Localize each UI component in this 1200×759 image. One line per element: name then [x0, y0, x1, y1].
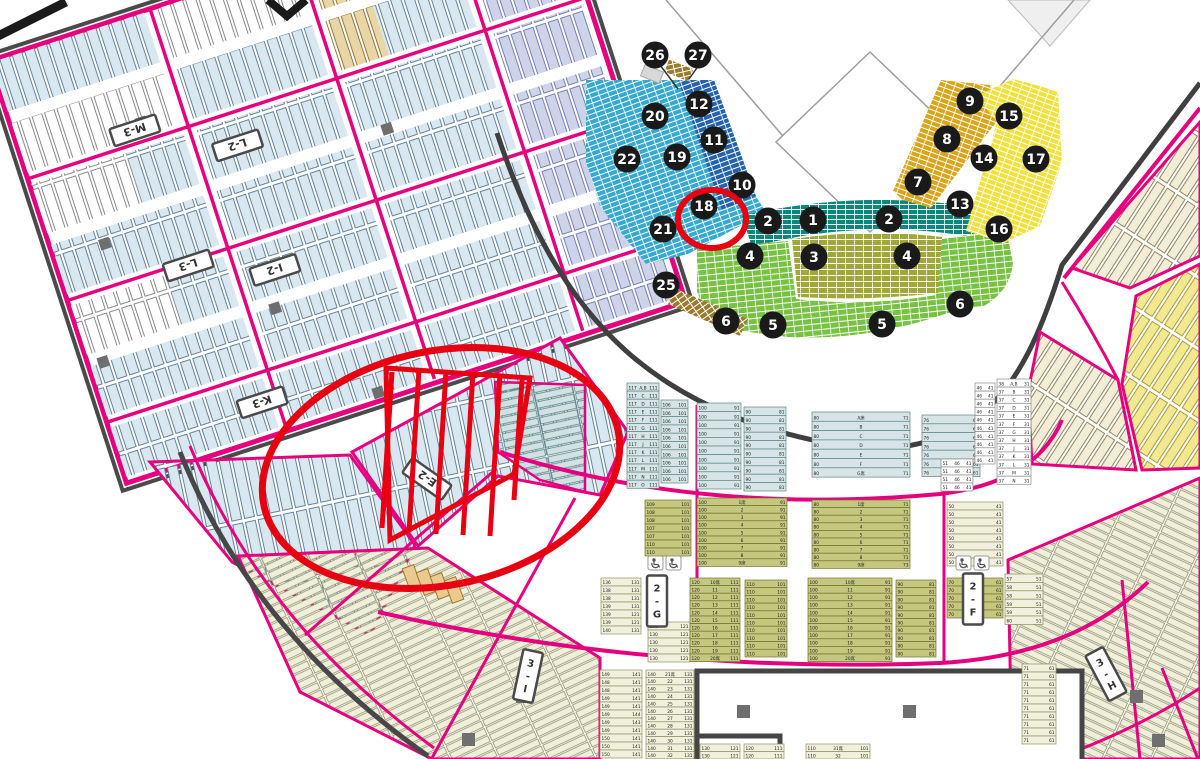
seat-row-number: 58: [1007, 585, 1013, 591]
seat-row-number: 91: [885, 580, 891, 586]
seat-row-number: 51: [943, 477, 949, 483]
stairs-icon: [1152, 734, 1165, 747]
seat-row-number: 100: [810, 618, 818, 624]
seat-row-number: 100: [699, 500, 707, 506]
seat-row-number: G: [1012, 430, 1015, 436]
seat-row-number: 110: [747, 582, 755, 588]
seat-row-number: 131: [684, 731, 692, 737]
seat-row-number: 2: [741, 508, 744, 514]
seat-row-number: 91: [780, 538, 786, 544]
accessibility-icon: [974, 556, 989, 570]
seat-row-number: 90: [898, 628, 904, 634]
seat-row-number: 71: [903, 548, 909, 554]
seat-row-number: 46: [977, 402, 983, 408]
seat-row-number: 101: [678, 419, 686, 425]
minimap-section-circle: 13: [947, 191, 974, 218]
seat-row-number: 100: [810, 656, 818, 662]
seat-row-number: 71: [903, 415, 909, 421]
seat-row-number: 80: [814, 532, 820, 538]
seat-row-number: 131: [631, 596, 639, 602]
minimap-section-number: 26: [645, 48, 664, 64]
seat-row-number: 51: [943, 469, 949, 475]
minimap-section-number: 4: [745, 249, 755, 265]
right-wing-stand-upper: [1072, 122, 1200, 288]
seat-row-number: 37: [999, 479, 1005, 485]
seat-row-number: 50: [949, 552, 955, 558]
seat-row-number: 117: [629, 483, 637, 489]
seat-row-number: 121: [730, 746, 738, 752]
seat-row-number: 111: [730, 656, 738, 662]
seat-row-number: 2: [860, 510, 863, 516]
seat-row-number: 107: [647, 534, 655, 540]
seat-block-group: 117A,B111117C111117D111117E111117F111117…: [627, 383, 659, 489]
seat-row-number: 140: [648, 694, 656, 700]
seat-row-number: 110: [747, 590, 755, 596]
minimap-section-number: 5: [877, 317, 887, 333]
seat-row-number: 41: [996, 544, 1002, 550]
minimap-section-number: 5: [768, 318, 778, 334]
seat-row-number: 131: [684, 687, 692, 693]
seat-row-number: 37: [999, 470, 1005, 476]
seat-row-number: 106: [663, 461, 671, 467]
seat-row-number: 71: [903, 540, 909, 546]
seat-row-number: 81: [929, 597, 935, 603]
seat-row-number: 101: [777, 644, 785, 650]
seat-row-number: 13: [847, 603, 853, 609]
seat-row-number: 71: [903, 452, 909, 458]
seat-row-number: 71: [1024, 730, 1030, 736]
seat-row-number: 80: [814, 502, 820, 508]
seat-row-number: 61: [1049, 706, 1055, 712]
seat-row-number: 18: [712, 641, 718, 647]
seat-row-number: 41: [988, 410, 994, 416]
minimap-section-circle: 20: [642, 103, 669, 130]
minimap-section-circle: 5: [869, 311, 896, 338]
seat-row-number: 100: [699, 561, 707, 567]
seat-row-number: E: [1013, 414, 1016, 420]
seat-row-number: 101: [681, 526, 689, 532]
seat-row-number: 81: [929, 636, 935, 642]
minimap-section-circle: 15: [996, 103, 1023, 130]
minimap-section-circle: 16: [986, 216, 1013, 243]
seat-row-number: 120: [746, 753, 754, 759]
minimap-section-number: 12: [689, 97, 708, 113]
seat-row-number: 71: [903, 471, 909, 477]
seat-block-group: 120111120111: [744, 744, 784, 759]
minimap-section-circle: 4: [737, 243, 764, 270]
seat-row-number: 41: [966, 461, 972, 467]
seat-block-group: 4641464146414641464146414641464146414641: [975, 383, 995, 464]
stairs-icon: [1130, 690, 1143, 703]
seat-row-number: 7: [741, 546, 744, 552]
minimap-section-number: 13: [950, 197, 969, 213]
seat-row-number: 140: [648, 687, 656, 693]
seat-row-number: 31: [1024, 430, 1030, 436]
minimap-section-circle: 17: [1023, 146, 1050, 173]
seat-row-number: 46: [977, 410, 983, 416]
seat-row-number: 139: [603, 612, 611, 618]
seat-row-number: 100: [699, 414, 707, 420]
seat-row-number: 100: [699, 423, 707, 429]
seat-row-number: 7: [860, 548, 863, 554]
seat-row-number: 107: [647, 526, 655, 532]
seat-row-number: 101: [681, 542, 689, 548]
seat-block-group: 7161716171617161716171617161716171617161: [1022, 664, 1056, 744]
minimap-section-circle: 14: [971, 145, 998, 172]
seat-row-number: 37: [999, 438, 1005, 444]
seat-row-number: 81: [929, 613, 935, 619]
seat-row-number: 90: [746, 452, 752, 458]
seat-row-number: 91: [780, 553, 786, 559]
seat-row-number: 70: [949, 604, 955, 610]
seat-row-number: E: [642, 410, 645, 416]
seat-row-number: 117: [629, 434, 637, 440]
seat-row-number: 130: [650, 648, 658, 654]
seat-row-number: 101: [777, 651, 785, 657]
seat-block-group: 801席718027180371804718057180671807718087…: [812, 500, 910, 569]
seat-row-number: 90: [746, 426, 752, 432]
seat-row-number: 76: [924, 427, 930, 433]
seat-row-number: 37: [999, 398, 1005, 404]
seat-row-number: 100: [699, 530, 707, 536]
seat-row-number: 50: [949, 504, 955, 510]
seat-row-number: 81: [779, 452, 785, 458]
seat-row-number: 17: [712, 633, 718, 639]
seat-row-number: 100: [699, 475, 707, 481]
seat-row-number: 106: [663, 469, 671, 475]
seat-row-number: 149: [602, 704, 610, 710]
seat-row-number: 32: [667, 753, 673, 759]
seat-row-number: 141: [632, 696, 640, 702]
seat-row-number: 141: [632, 744, 640, 750]
seat-row-number: 131: [684, 738, 692, 744]
seat-row-number: 61: [1049, 674, 1055, 680]
seat-row-number: 90: [746, 410, 752, 416]
seat-row-number: 120: [692, 633, 700, 639]
seat-row-number: 81: [779, 418, 785, 424]
seat-row-number: 51: [1036, 610, 1042, 616]
seat-row-number: C: [641, 393, 644, 399]
seat-row-number: 120: [692, 603, 700, 609]
seat-row-number: 138: [603, 588, 611, 594]
seat-row-number: 108: [647, 518, 655, 524]
seat-row-number: 101: [678, 436, 686, 442]
seat-row-number: 13: [712, 603, 718, 609]
minimap-section-number: 6: [721, 314, 731, 330]
accessibility-icon: [648, 556, 663, 570]
minimap-section-number: 16: [989, 222, 1008, 238]
seat-row-number: 140: [648, 679, 656, 685]
seat-row-number: 57: [1007, 577, 1013, 583]
seat-row-number: 81: [929, 582, 935, 588]
seat-row-number: 12: [847, 595, 853, 601]
seat-row-number: 90: [898, 605, 904, 611]
seat-row-number: 46: [954, 485, 960, 491]
seat-row-number: 4: [741, 523, 744, 529]
seat-row-number: 131: [684, 724, 692, 730]
seat-row-number: 117: [629, 466, 637, 472]
seat-row-number: 46: [977, 434, 983, 440]
seat-row-number: 131: [684, 701, 692, 707]
seat-row-number: 100: [699, 457, 707, 463]
seat-row-number: 80: [814, 415, 820, 421]
seat-row-number: 31: [1024, 406, 1030, 412]
seat-row-number: 50: [949, 560, 955, 566]
seat-row-number: 51: [943, 485, 949, 491]
seat-row-number: A,B: [639, 385, 646, 391]
seat-row-number: 41: [988, 426, 994, 432]
seat-row-number: 19: [712, 648, 718, 654]
seat-row-number: 23: [667, 687, 673, 693]
seat-row-number: 91: [885, 656, 891, 662]
seat-row-number: 150: [602, 736, 610, 742]
seat-row-number: 31: [1024, 398, 1030, 404]
seat-row-number: 17: [847, 633, 853, 639]
seat-row-number: 101: [777, 582, 785, 588]
seat-row-number: 91: [885, 610, 891, 616]
seat-row-number: 111: [730, 595, 738, 601]
seat-row-number: 90: [746, 477, 752, 483]
seat-row-number: 71: [1024, 690, 1030, 696]
seat-row-number: 91: [885, 648, 891, 654]
seat-row-number: 140: [648, 731, 656, 737]
seat-row-number: 59: [1007, 610, 1013, 616]
seat-block-group: 1091011081011081011071011071011101011101…: [645, 500, 691, 556]
minimap-section-number: 2: [763, 214, 773, 230]
seat-row-number: 120: [746, 746, 754, 752]
seat-row-number: 15: [712, 618, 718, 624]
seat-block-group: 130121130121130121130121130121: [648, 622, 690, 662]
seat-row-number: 141: [632, 752, 640, 758]
seat-row-number: 41: [996, 520, 1002, 526]
grandstand-wedge-right: [1008, 0, 1090, 46]
seat-row-number: 76: [924, 471, 930, 477]
seat-row-number: 41: [966, 469, 972, 475]
seat-row-number: 71: [903, 510, 909, 516]
seat-row-number: 51: [1036, 577, 1042, 583]
seat-row-number: 131: [684, 746, 692, 752]
seat-row-number: 41: [996, 504, 1002, 510]
seat-block-group: 10010席9110011911001291100139110014911001…: [808, 578, 892, 662]
seat-row-number: 111: [649, 418, 657, 424]
seat-row-number: 100: [810, 603, 818, 609]
seat-row-number: 6: [860, 540, 863, 546]
seat-row-number: 90: [746, 443, 752, 449]
seat-row-number: N: [1012, 479, 1015, 485]
seat-row-number: 80: [814, 462, 820, 468]
minimap-section-circle: 12: [686, 91, 713, 118]
seat-row-number: 31: [1024, 414, 1030, 420]
seat-row-number: 90: [746, 418, 752, 424]
seat-row: [947, 518, 1003, 526]
seat-row-number: 41: [966, 485, 972, 491]
seat-row-number: 111: [649, 466, 657, 472]
seat-row-number: 91: [885, 633, 891, 639]
seat-row-number: 101: [777, 621, 785, 627]
seat-row-number: 8: [741, 553, 744, 559]
seat-row-number: 100: [699, 449, 707, 455]
seat-row-number: 100: [699, 440, 707, 446]
seat-row-number: 111: [730, 580, 738, 586]
seat-row-number: 31席: [833, 745, 843, 752]
seat-row-number: 101: [777, 597, 785, 603]
seat-row-number: 81: [929, 628, 935, 634]
seat-row-number: 37: [999, 446, 1005, 452]
seat-row-number: 4: [860, 525, 863, 531]
seat-row-number: 100: [810, 626, 818, 632]
minimap-section-circle: 9: [957, 88, 984, 115]
seat-row-number: 37: [999, 430, 1005, 436]
seat-row-number: 10席: [845, 579, 855, 586]
minimap-section-circle: 19: [664, 144, 691, 171]
seat-row: [922, 441, 980, 450]
minimap-section-number: 10: [732, 178, 752, 194]
seat-row-number: 41: [996, 528, 1002, 534]
seat-row-number: C: [859, 434, 862, 440]
seat-row-number: 111: [730, 588, 738, 594]
seat-row-number: 110: [747, 628, 755, 634]
minimap-section-number: 14: [974, 151, 994, 167]
seat-row-number: 71: [1024, 714, 1030, 720]
seat-row-number: 117: [629, 402, 637, 408]
seat-row-number: 71: [903, 532, 909, 538]
seat-row-number: 80: [814, 510, 820, 516]
minimap-section-number: 4: [902, 249, 912, 265]
seat-row-number: 70: [949, 612, 955, 618]
seat-row-number: 51: [1036, 593, 1042, 599]
seat-row-number: 130: [702, 753, 710, 759]
seat-row-number: 80: [814, 540, 820, 546]
seat-row-number: 140: [648, 746, 656, 752]
seat-row-number: 117: [629, 410, 637, 416]
seat-row-number: 81: [929, 590, 935, 596]
seat-row-number: 110: [747, 636, 755, 642]
seat-row-number: 101: [777, 605, 785, 611]
minimap-section-number: 25: [656, 278, 675, 294]
seat-row-number: 101: [678, 452, 686, 458]
seat-row-number: 90: [898, 644, 904, 650]
seat-row-number: 41: [996, 512, 1002, 518]
seat-row-number: 46: [954, 461, 960, 467]
seat-row-number: 9席: [857, 562, 865, 569]
seat-row-number: 111: [730, 618, 738, 624]
seat-row-number: 90: [746, 485, 752, 491]
minimap-section-number: 11: [704, 133, 723, 149]
seat-row-number: 31: [1024, 479, 1030, 485]
seat-row-number: M: [641, 466, 645, 472]
seat-row-number: 81: [929, 651, 935, 657]
stairs-icon: [737, 705, 750, 718]
seat-row-number: 71: [1024, 666, 1030, 672]
seat-row-number: 50: [949, 512, 955, 518]
seat-row-number: 61: [1049, 690, 1055, 696]
seat-row-number: 61: [1049, 698, 1055, 704]
seat-row-number: 37: [999, 389, 1005, 395]
seat-row-number: 11: [847, 588, 853, 594]
seat-row-number: 111: [730, 648, 738, 654]
seat-row-number: 50: [949, 544, 955, 550]
seat-row-number: 139: [603, 620, 611, 626]
seat-row-number: 120: [692, 656, 700, 662]
seat-row-number: 50: [949, 536, 955, 542]
seat-row-number: 71: [1024, 682, 1030, 688]
seat-row-number: 110: [747, 597, 755, 603]
seat-row-number: 41: [996, 536, 1002, 542]
seat-row-number: C: [1012, 398, 1015, 404]
seat-row-number: 138: [603, 596, 611, 602]
minimap-section-number: 7: [913, 175, 923, 191]
seat-row-number: 90: [898, 621, 904, 627]
minimap-section-number: 1: [808, 213, 818, 229]
seat-row-number: 14: [847, 610, 853, 616]
seat-row-number: B: [860, 425, 863, 431]
seat-row-number: 90: [898, 613, 904, 619]
seat-row-number: 90: [898, 636, 904, 642]
minimap-section-circle: 4: [894, 243, 921, 270]
seat-row-number: 15: [847, 618, 853, 624]
seat-row-number: 41: [988, 458, 994, 464]
seat-row-number: 26: [667, 709, 673, 715]
seat-row-number: 148: [602, 688, 610, 694]
seat-row-number: 80: [814, 548, 820, 554]
seat-block-group: 514641514641514641514641: [941, 459, 973, 491]
seat-row-number: 71: [1024, 738, 1030, 744]
seat-row-number: 25: [667, 701, 673, 707]
seat-row-number: 131: [631, 580, 639, 586]
seat-row-number: 76: [924, 418, 930, 424]
seat-row-number: 100: [810, 641, 818, 647]
seat-row-number: 5: [860, 532, 863, 538]
seat-row-number: 70: [949, 596, 955, 602]
seat-block-group: 9081908190819081908190819081908190819081: [744, 407, 786, 491]
seat-row-number: 73: [903, 563, 909, 569]
seat-row-number: 111: [649, 393, 657, 399]
seat-row-number: 131: [631, 628, 639, 634]
minimap-section-circle: 5: [760, 312, 787, 339]
seat-row-number: 91: [780, 508, 786, 514]
seat-row-number: 61: [973, 471, 979, 477]
seat-row-number: 100: [699, 432, 707, 438]
seat-row-number: 41: [988, 442, 994, 448]
seat-row-number: 20席: [845, 655, 855, 662]
seat-row-number: 106: [663, 419, 671, 425]
seat-row-number: 71: [903, 525, 909, 531]
seat-row-number: 58: [1007, 593, 1013, 599]
seat-row-number: 41: [988, 450, 994, 456]
seat-row-number: 111: [649, 458, 657, 464]
seat-row-number: 117: [629, 458, 637, 464]
seat-row-number: 101: [860, 753, 868, 759]
minimap-section-number: 20: [645, 109, 665, 125]
seat-row-number: J: [1012, 446, 1014, 452]
seat-row-number: 111: [774, 746, 782, 752]
seat-row-number: 131: [684, 753, 692, 759]
seat-row-number: 71: [903, 502, 909, 508]
seat-row-number: 41: [996, 552, 1002, 558]
seat-row-number: 27: [667, 716, 673, 722]
seat-row-number: 12: [712, 595, 718, 601]
seat-row-number: 91: [780, 530, 786, 536]
seat-row-number: 150: [602, 744, 610, 750]
minimap-section-number: 6: [955, 297, 965, 313]
seat-row-number: 81: [779, 460, 785, 466]
seat-row-number: 51: [1036, 619, 1042, 625]
seat-row-number: 149: [602, 728, 610, 734]
seat-row-number: 71: [903, 517, 909, 523]
seat-row-number: 101: [681, 550, 689, 556]
seat-row-number: 120: [692, 641, 700, 647]
seat-block-group: 12010席1111201111112012111120131111201411…: [690, 578, 740, 662]
